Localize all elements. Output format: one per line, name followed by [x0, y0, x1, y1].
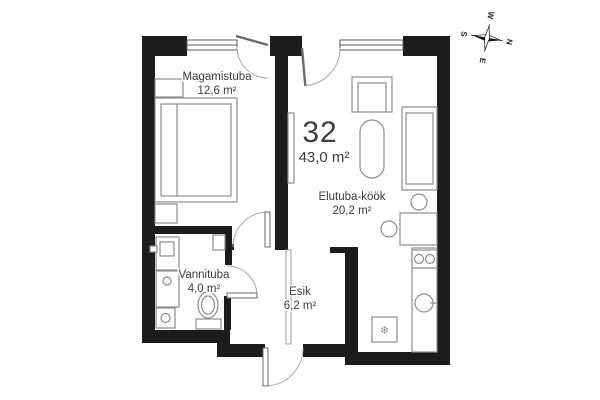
compass-east-label: E [478, 57, 488, 64]
living-room-label: Elutuba-köök [318, 191, 385, 203]
wall-bathroom-top [142, 226, 231, 234]
unit-total-area: 43,0 m² [299, 149, 350, 166]
bed [155, 98, 237, 202]
wall-exterior-right [437, 36, 450, 365]
cooktop [412, 250, 437, 268]
wall-top-left-corner [142, 36, 187, 56]
hallway-label: Esik [289, 286, 311, 298]
compass-south-label: S [459, 31, 469, 38]
living-balcony-door-leaf [302, 48, 305, 86]
bathroom-cabinet [156, 271, 179, 307]
bedroom-door-swing [233, 212, 268, 247]
sofa [402, 107, 437, 190]
kitchen-table [400, 213, 437, 245]
hallway-area: 6,2 m² [284, 300, 317, 312]
toilet-tank [196, 319, 221, 329]
wall-hallway-bottom-left [217, 344, 265, 357]
bedroom-furniture [155, 79, 237, 223]
living-balcony-door-swing [305, 48, 340, 86]
entrance-door-swing [265, 348, 303, 386]
bedroom-area: 12,6 m² [198, 85, 237, 97]
living-room-area: 20,2 m² [333, 205, 372, 217]
bedroom-door-leaf [265, 212, 270, 247]
chair-2 [381, 221, 397, 237]
wall-bathroom-right-lower [224, 296, 231, 330]
entrance-door-leaf [263, 348, 268, 386]
bathroom-area: 4,0 m² [188, 283, 221, 295]
compass-west-label: W [485, 11, 495, 20]
bathroom-shelf [213, 235, 225, 250]
floor-plan-drawing: ❄ Magamistuba 12,6 m² 32 43,0 m² Elutuba… [0, 0, 600, 400]
bathroom-fixtures [150, 235, 225, 329]
compass-north-label: N [504, 38, 514, 45]
floor-plan-page: ❄ Magamistuba 12,6 m² 32 43,0 m² Elutuba… [0, 0, 600, 400]
wall-kitchen-bottom [345, 352, 450, 365]
nightstand-top [155, 79, 183, 97]
bathroom-door-leaf [227, 293, 257, 298]
compass-rose-icon: N E S W [455, 7, 518, 69]
bathroom-label: Vannituba [179, 269, 231, 281]
unit-number: 32 [302, 116, 337, 149]
wall-bedroom-living [275, 56, 288, 250]
kitchen-fixtures: ❄ [372, 248, 437, 352]
bathroom-door-swing [227, 266, 257, 296]
wall-exterior-left [142, 36, 155, 343]
tv-bench [288, 113, 294, 183]
bedroom-label: Magamistuba [182, 71, 252, 83]
bedroom-balcony-door-leaf [236, 36, 268, 45]
dining-table [360, 120, 384, 178]
wall-top-center-pier [270, 36, 302, 56]
chair-1 [411, 194, 427, 210]
fridge-snowflake-icon: ❄ [380, 325, 389, 337]
wall-hallway-kitchen [345, 247, 358, 352]
washing-machine [156, 308, 175, 328]
wall-bathroom-bottom [142, 330, 230, 343]
nightstand-bottom [155, 204, 177, 223]
washbasin-tap [150, 246, 157, 252]
